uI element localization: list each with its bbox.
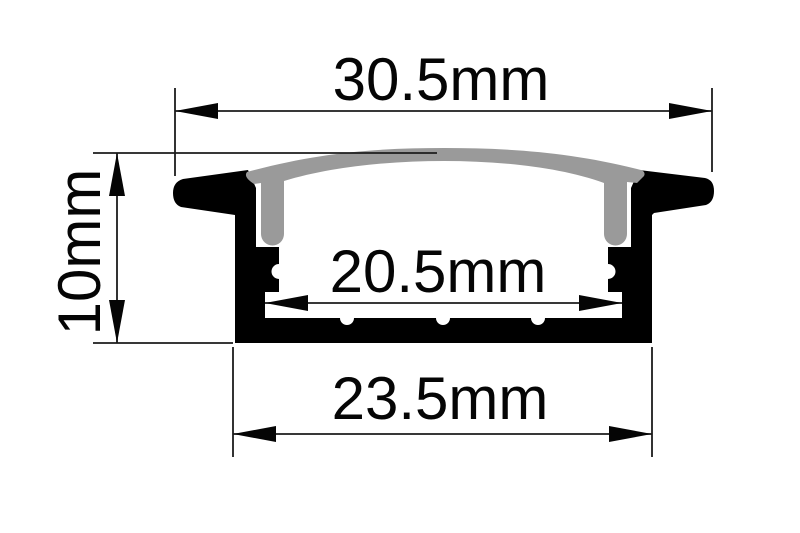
dimension-bottom-width: 23.5mm [233,347,652,457]
arrowhead-left-icon [265,295,308,311]
dimension-label-bottom-width: 23.5mm [332,365,549,432]
dimension-inner-width: 20.5mm [265,238,622,311]
profile-drawing: 30.5mm 10mm 20.5mm 23.5mm [0,0,800,533]
drawing-canvas: 30.5mm 10mm 20.5mm 23.5mm [0,0,800,533]
arrowhead-right-icon [669,103,712,119]
arrowhead-right-icon [609,426,652,442]
arrowhead-left-icon [233,426,276,442]
arrowhead-left-icon [175,103,218,119]
diffuser-cover [246,148,645,246]
dimension-label-height: 10mm [46,169,113,336]
dimension-label-top-width: 30.5mm [333,46,550,113]
arrowhead-right-icon [579,295,622,311]
dimension-label-inner-width: 20.5mm [330,238,547,305]
